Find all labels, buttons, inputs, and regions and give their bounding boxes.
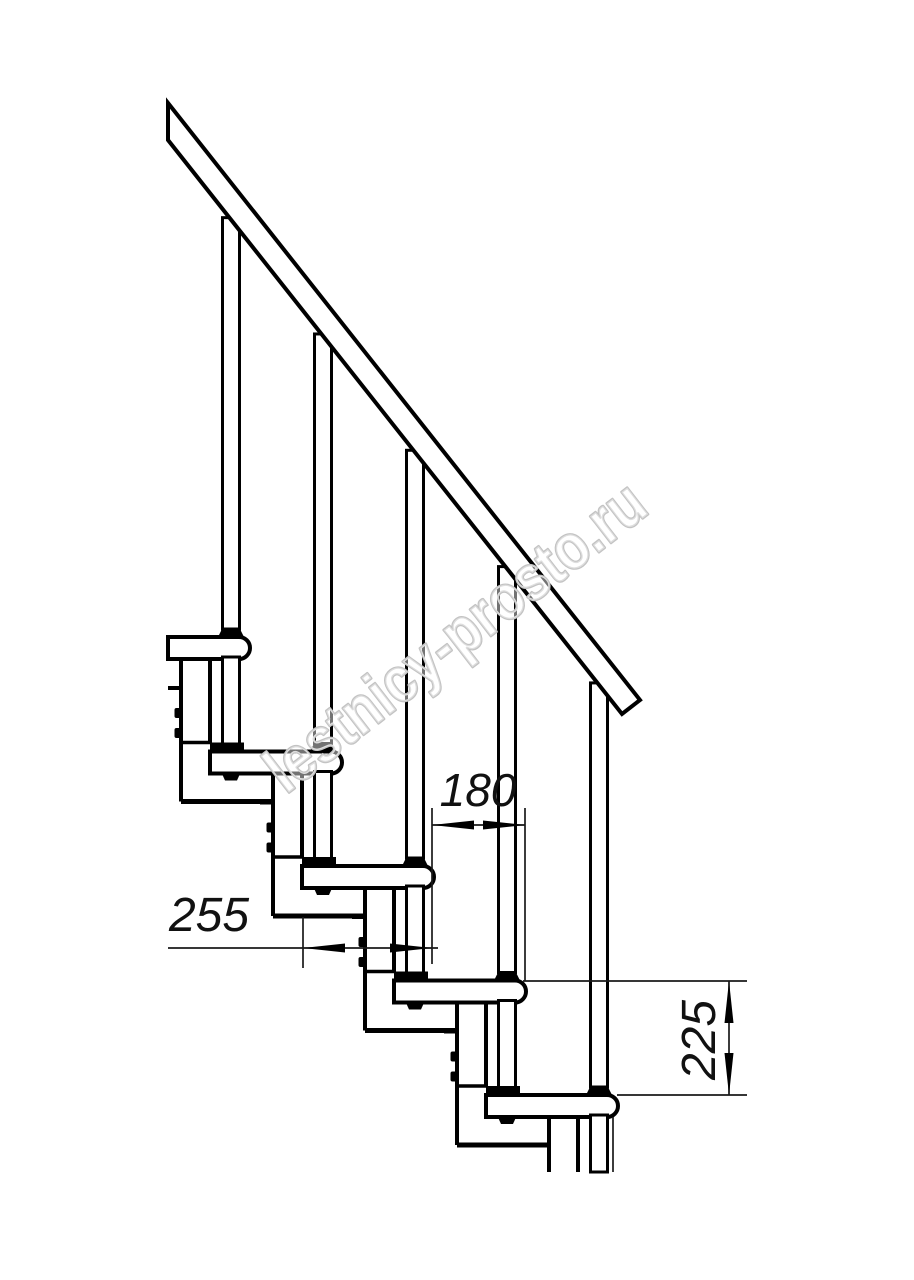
bolt-icon	[267, 843, 275, 853]
baluster-collar	[494, 973, 520, 981]
rod-nut	[313, 886, 333, 895]
baluster-collar	[218, 629, 244, 637]
rod-nut	[497, 1115, 517, 1124]
rod-flange	[394, 972, 428, 980]
rod-flange	[302, 857, 336, 865]
dimension-label-180: 180	[440, 764, 517, 816]
bolt-icon	[267, 823, 275, 833]
bolt-icon	[175, 728, 183, 738]
rod-nut	[405, 1001, 425, 1010]
staircase-side-view-drawing: 180 255 225 lestnicy-prosto.ru	[0, 0, 914, 1280]
arrow-left-icon	[432, 821, 474, 830]
bolt-icon	[451, 1052, 459, 1062]
bolt-icon	[175, 708, 183, 718]
technical-drawing-page: 180 255 225 lestnicy-prosto.ru	[0, 0, 914, 1280]
baluster	[223, 218, 240, 629]
rod-nut	[221, 772, 241, 781]
baluster-collar	[402, 858, 428, 866]
dimension-label-255: 255	[168, 889, 249, 942]
bolt-icon	[359, 937, 367, 947]
support-rod	[407, 886, 424, 974]
support-rod	[499, 1001, 516, 1089]
rod-flange	[210, 743, 244, 751]
dimension-label-225: 225	[673, 1000, 726, 1081]
arrow-left-icon	[303, 944, 345, 953]
dimension-step-rise: 225	[523, 981, 747, 1095]
baluster	[315, 334, 332, 744]
support-rod	[223, 657, 240, 745]
support-rod	[591, 1115, 608, 1172]
rod-flange	[486, 1086, 520, 1094]
baluster-collar	[586, 1087, 612, 1095]
bolt-icon	[359, 957, 367, 967]
dimension-module-depth: 255	[168, 889, 438, 968]
bolt-icon	[451, 1072, 459, 1082]
baluster	[591, 683, 608, 1087]
